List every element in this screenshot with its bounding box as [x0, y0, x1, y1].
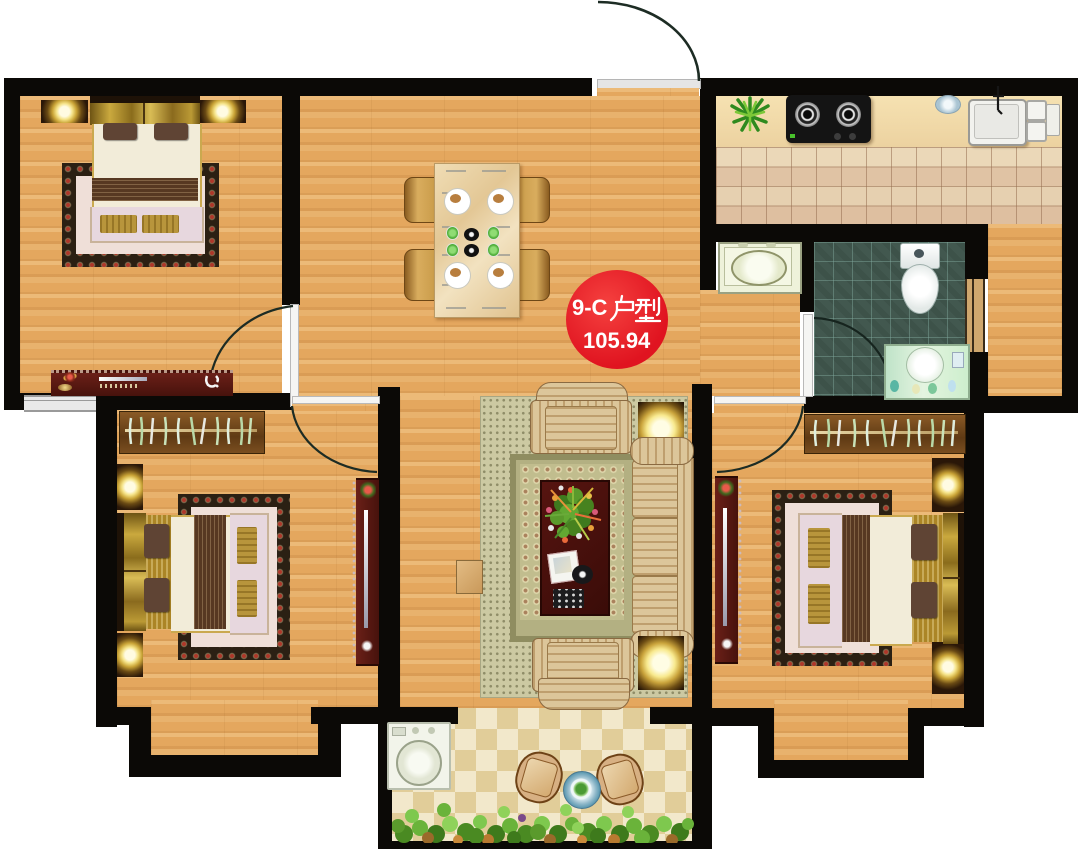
svg-text:105.94: 105.94 [583, 328, 651, 353]
svg-text:9-C: 9-C [572, 295, 608, 320]
